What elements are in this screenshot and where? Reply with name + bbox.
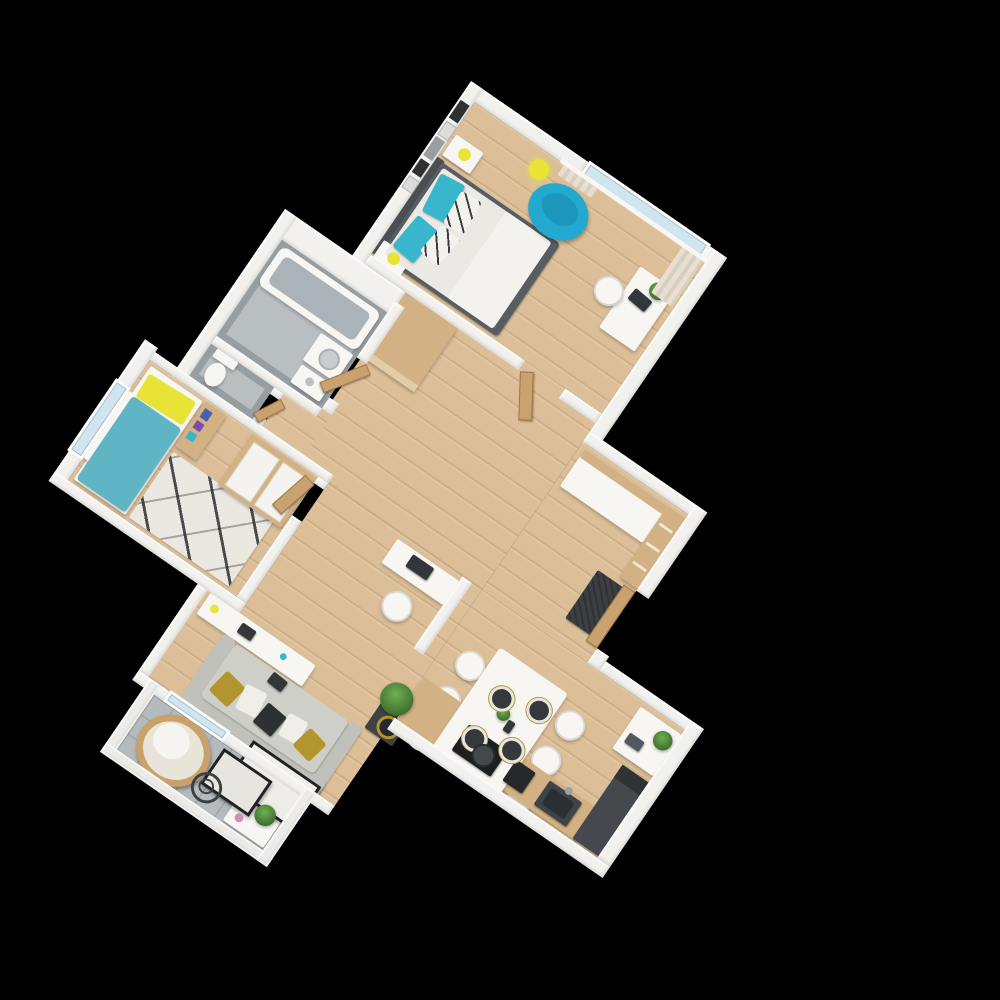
floor-plan-render bbox=[0, 0, 1000, 1000]
apartment-plan bbox=[0, 5, 967, 1000]
master-door bbox=[518, 371, 533, 420]
